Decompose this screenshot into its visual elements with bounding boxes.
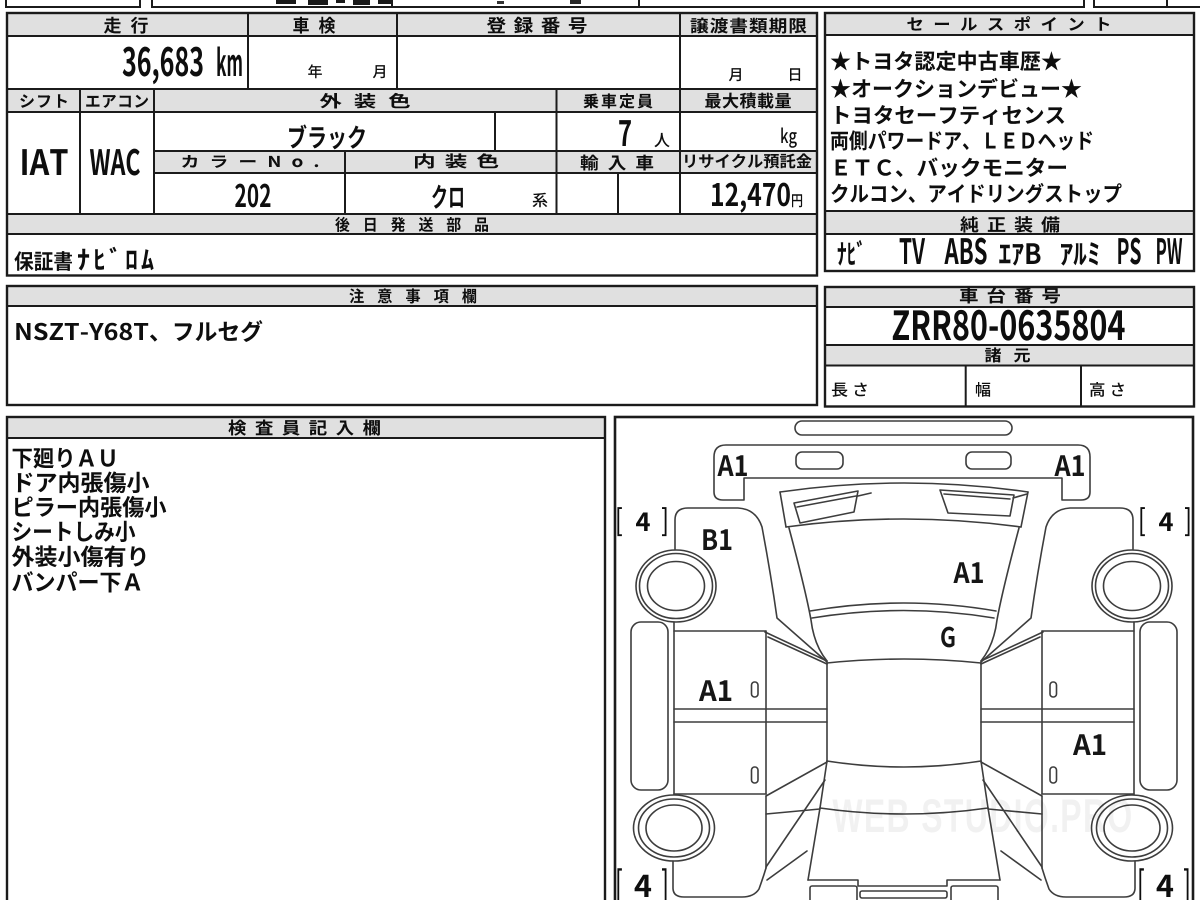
svg-text:WEB STUDIO.PRO: WEB STUDIO.PRO [832,790,1133,843]
